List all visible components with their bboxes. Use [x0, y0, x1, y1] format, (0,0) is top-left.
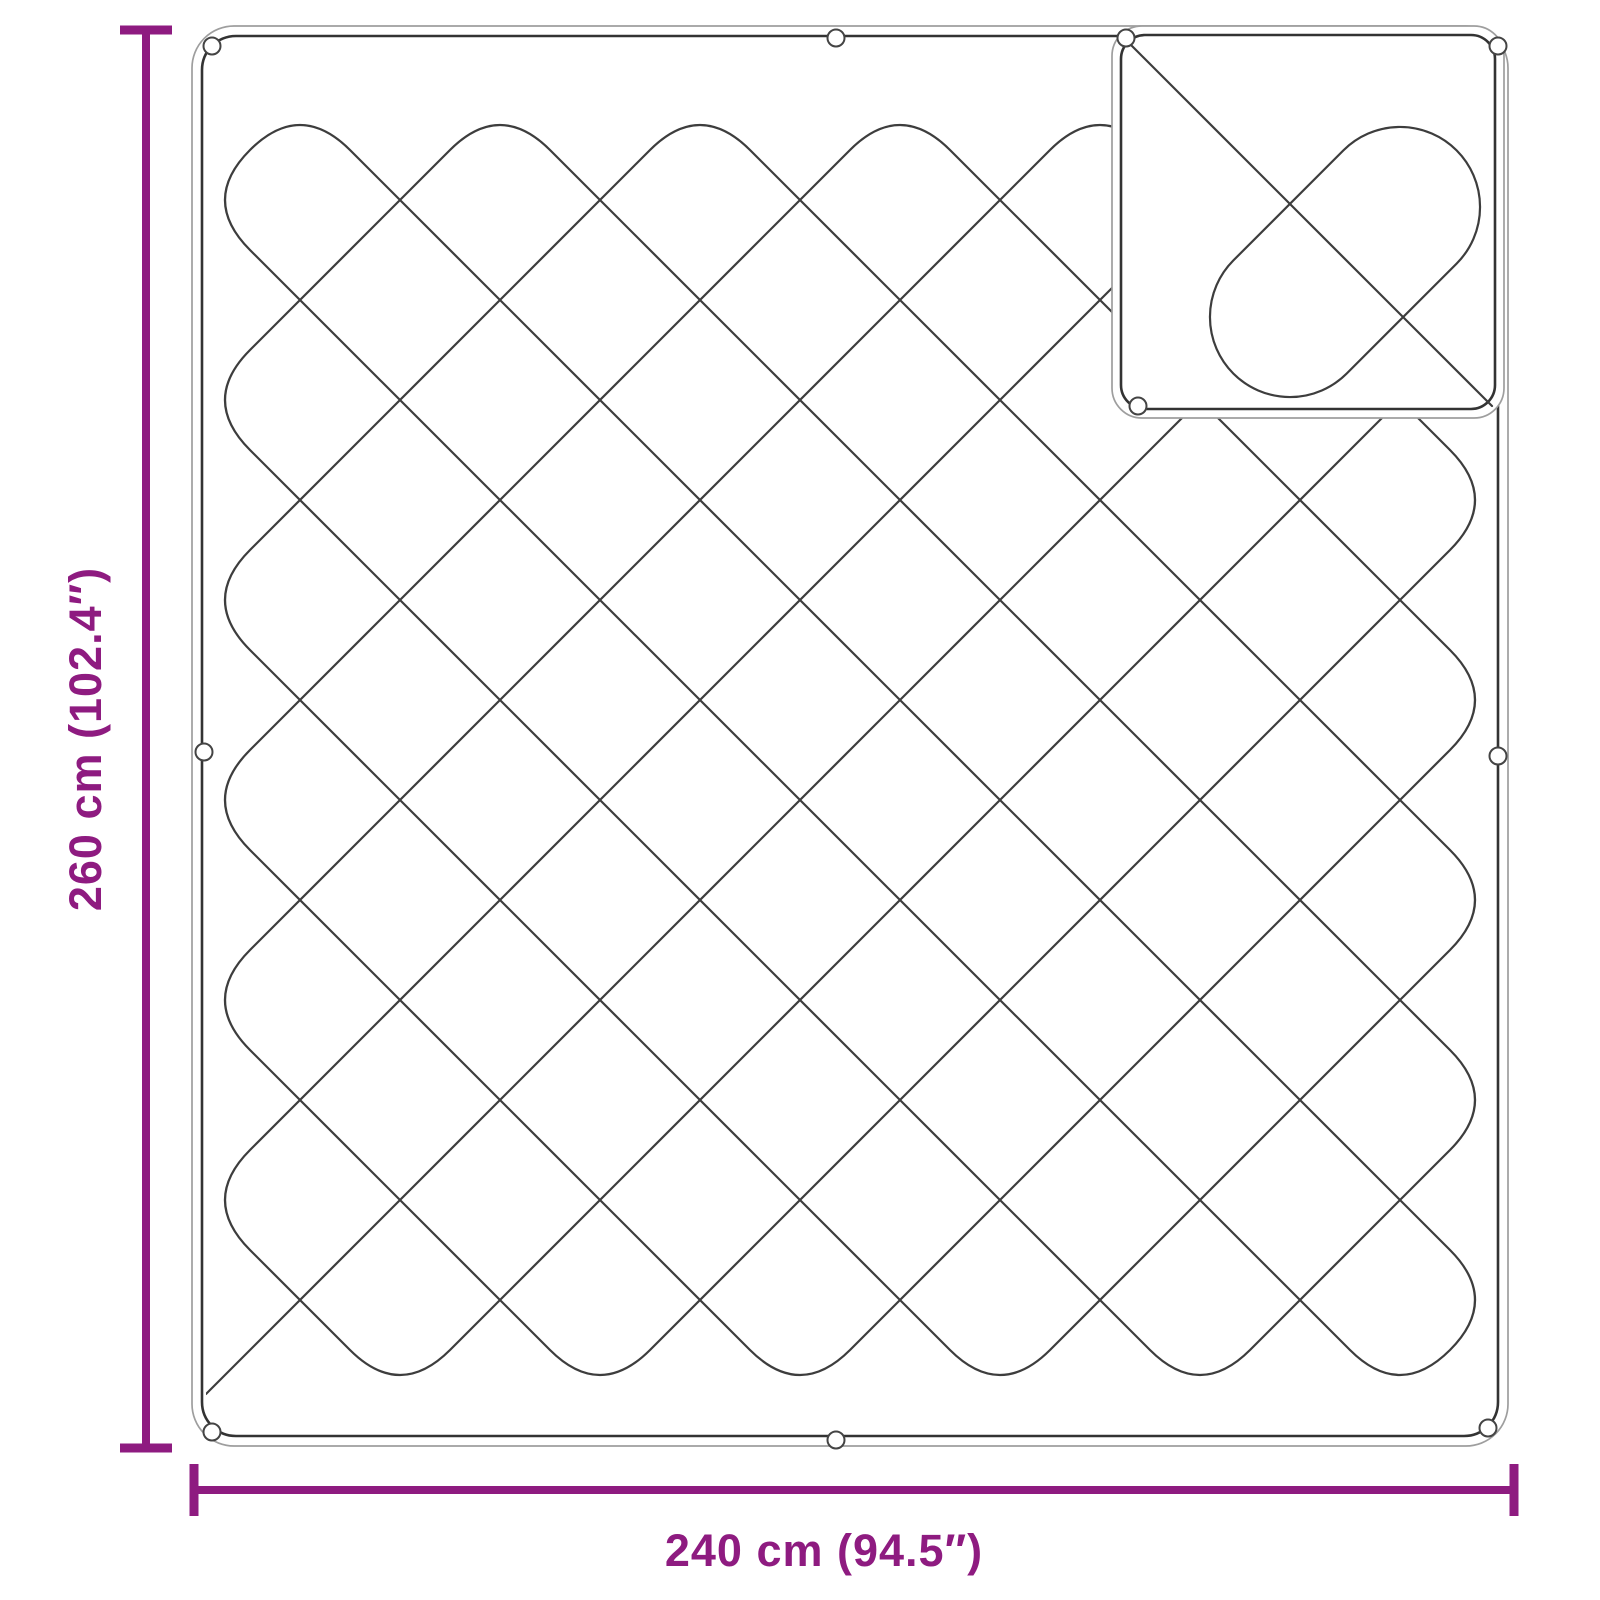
- vertical-dimension: 260 cm (102.4″): [60, 30, 172, 1448]
- blanket-dimension-diagram: 260 cm (102.4″) 240 cm (94.5″): [0, 0, 1600, 1600]
- diagram-canvas: 260 cm (102.4″) 240 cm (94.5″): [0, 0, 1600, 1600]
- edge-loop-bottom-middle: [828, 1432, 845, 1449]
- corner-loop-bottom-right: [1480, 1420, 1497, 1437]
- edge-loop-top-middle: [828, 30, 845, 47]
- corner-loop-top-left: [204, 38, 221, 55]
- flap-loop-top-left: [1118, 30, 1135, 47]
- edge-loop-mid-left: [196, 744, 213, 761]
- horizontal-dimension: 240 cm (94.5″): [194, 1464, 1514, 1576]
- folded-corner-flap: [1112, 26, 1504, 418]
- corner-loop-top-right: [1490, 38, 1507, 55]
- horizontal-dimension-label: 240 cm (94.5″): [665, 1525, 983, 1576]
- vertical-dimension-label: 260 cm (102.4″): [60, 567, 111, 911]
- corner-loop-bottom-left: [204, 1424, 221, 1441]
- flap-loop-bottom-left: [1130, 398, 1147, 415]
- edge-loop-mid-right: [1490, 748, 1507, 765]
